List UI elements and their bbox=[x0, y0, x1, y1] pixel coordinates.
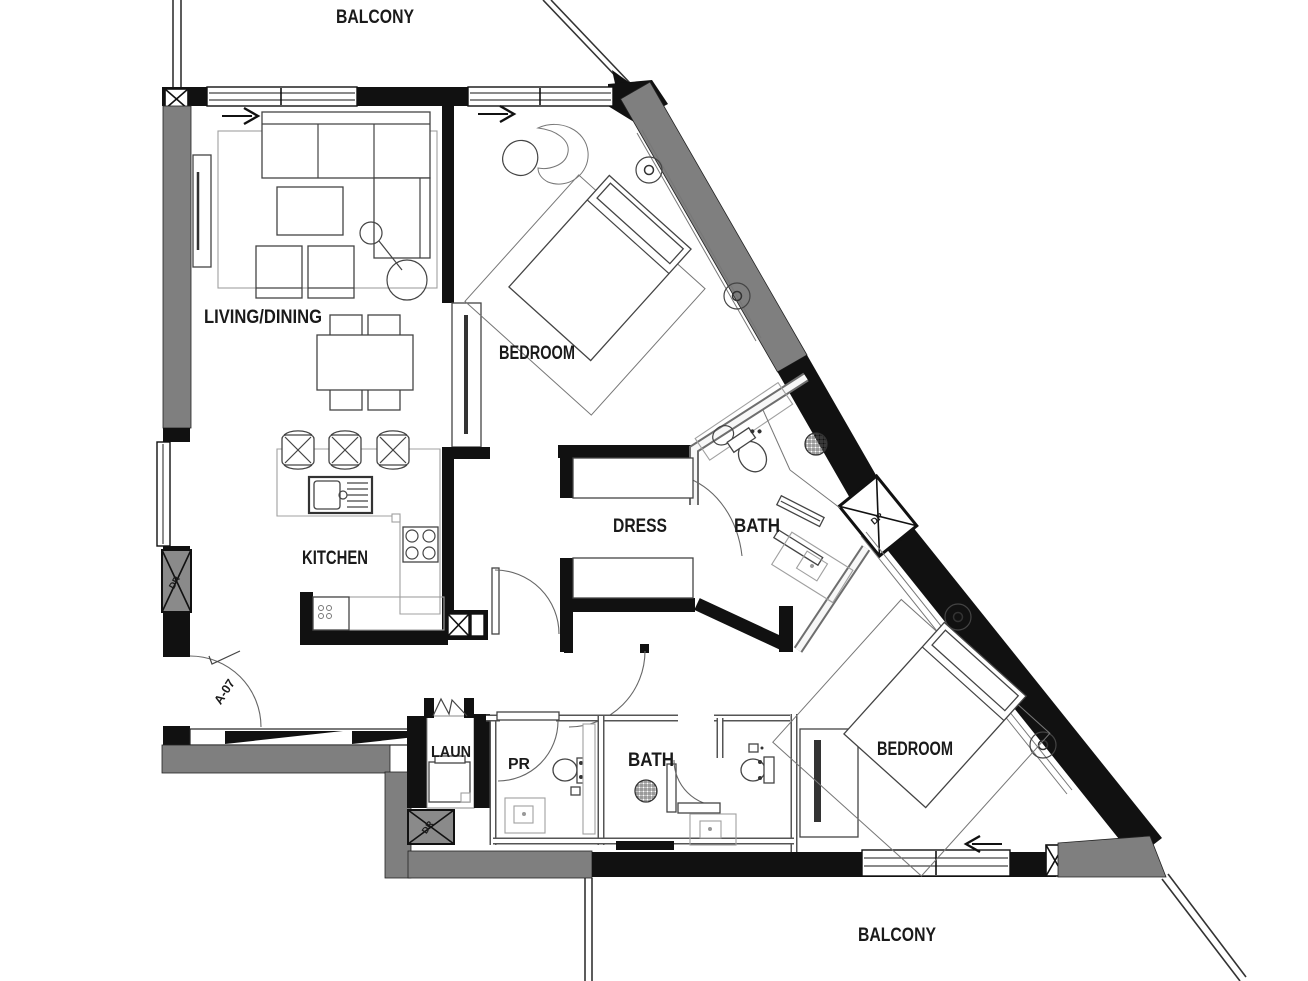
shower-drain-icon bbox=[635, 780, 657, 802]
kitchen-label: KITCHEN bbox=[302, 548, 368, 569]
bath-second-label: BATH bbox=[628, 750, 674, 771]
living-dining-label: LIVING/DINING bbox=[204, 307, 322, 328]
kitchen-duct bbox=[442, 610, 488, 640]
bath-master-label: BATH bbox=[734, 516, 780, 537]
balcony-top-label: BALCONY bbox=[336, 7, 414, 28]
bar-stools bbox=[282, 431, 409, 469]
cooktop-icon bbox=[403, 527, 438, 562]
window-left-lower bbox=[157, 442, 170, 546]
washer-icon bbox=[429, 756, 470, 802]
shower-drain-master-icon bbox=[805, 433, 827, 455]
bath-block: DR bbox=[407, 698, 794, 852]
living-dining bbox=[193, 112, 437, 410]
window-bottom-bedroom bbox=[862, 850, 1010, 876]
wardrobe-icon bbox=[800, 729, 858, 837]
arrow-right-icon bbox=[478, 106, 514, 122]
duct-left: DR bbox=[162, 550, 191, 612]
window-top-bedroom bbox=[468, 87, 613, 106]
kitchen-sink-icon bbox=[309, 477, 372, 513]
balcony-bottom-label: BALCONY bbox=[858, 925, 936, 946]
floor-plan: DR DR bbox=[0, 0, 1308, 981]
corner-structural-bottom bbox=[1058, 836, 1166, 877]
dress-label: DRESS bbox=[613, 516, 667, 537]
bifold-door-icon bbox=[433, 699, 467, 716]
toilet-master-icon bbox=[727, 423, 780, 477]
arrow-right-icon bbox=[222, 108, 258, 124]
powder-room-fixtures bbox=[497, 712, 595, 834]
powder-room-label: PR bbox=[508, 756, 530, 773]
entry-door-tag: A-07 bbox=[211, 677, 238, 707]
window-top-living bbox=[207, 87, 357, 106]
bed-icon bbox=[509, 175, 691, 360]
dining-set bbox=[317, 315, 413, 410]
oven-icon bbox=[313, 597, 349, 630]
bedroom-bottom-label: BEDROOM bbox=[877, 739, 953, 760]
coffee-table-icon bbox=[277, 187, 343, 235]
bedroom1-closet bbox=[452, 303, 481, 447]
sofa-icon bbox=[262, 112, 430, 258]
duct-laundry: DR bbox=[408, 810, 454, 844]
armchairs bbox=[256, 246, 354, 298]
bedroom-top bbox=[465, 124, 761, 415]
laundry-label: LAUN bbox=[431, 744, 471, 761]
bedroom-top-label: BEDROOM bbox=[499, 343, 575, 364]
